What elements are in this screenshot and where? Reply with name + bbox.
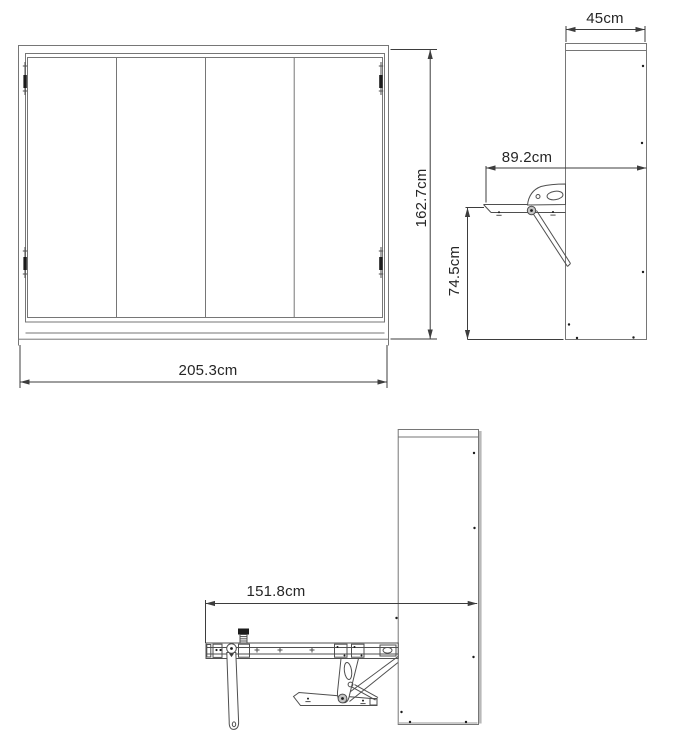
depth-dimension (566, 26, 645, 42)
knob-icon (238, 629, 249, 644)
front-height-label: 162.7cm (414, 138, 430, 258)
table-depth-label: 89.2cm (477, 150, 577, 166)
side-view-folded (484, 44, 647, 340)
screw-icon (550, 211, 555, 215)
front-view (19, 46, 389, 346)
drawing-canvas (0, 0, 677, 752)
hinge-icon (23, 247, 27, 278)
table-bracket (527, 184, 570, 267)
side-view-open (206, 430, 480, 730)
table-height-label: 74.5cm (447, 211, 463, 331)
screw-icon (496, 211, 501, 215)
front-width-label: 205.3cm (147, 363, 269, 379)
hinge-icon (23, 62, 27, 95)
support-mechanism (294, 657, 399, 706)
technical-drawing-page: { "colors": { "background": "#ffffff", "… (0, 0, 677, 752)
cabinet-side-panel (566, 44, 647, 340)
cabinet-depth-label: 45cm (565, 11, 645, 27)
bed-projection-label: 151.8cm (216, 584, 336, 600)
front-outer-frame (19, 46, 389, 340)
table-height-dimension (465, 208, 564, 340)
fold-out-table (484, 205, 566, 216)
cabinet-side-panel (398, 430, 478, 725)
